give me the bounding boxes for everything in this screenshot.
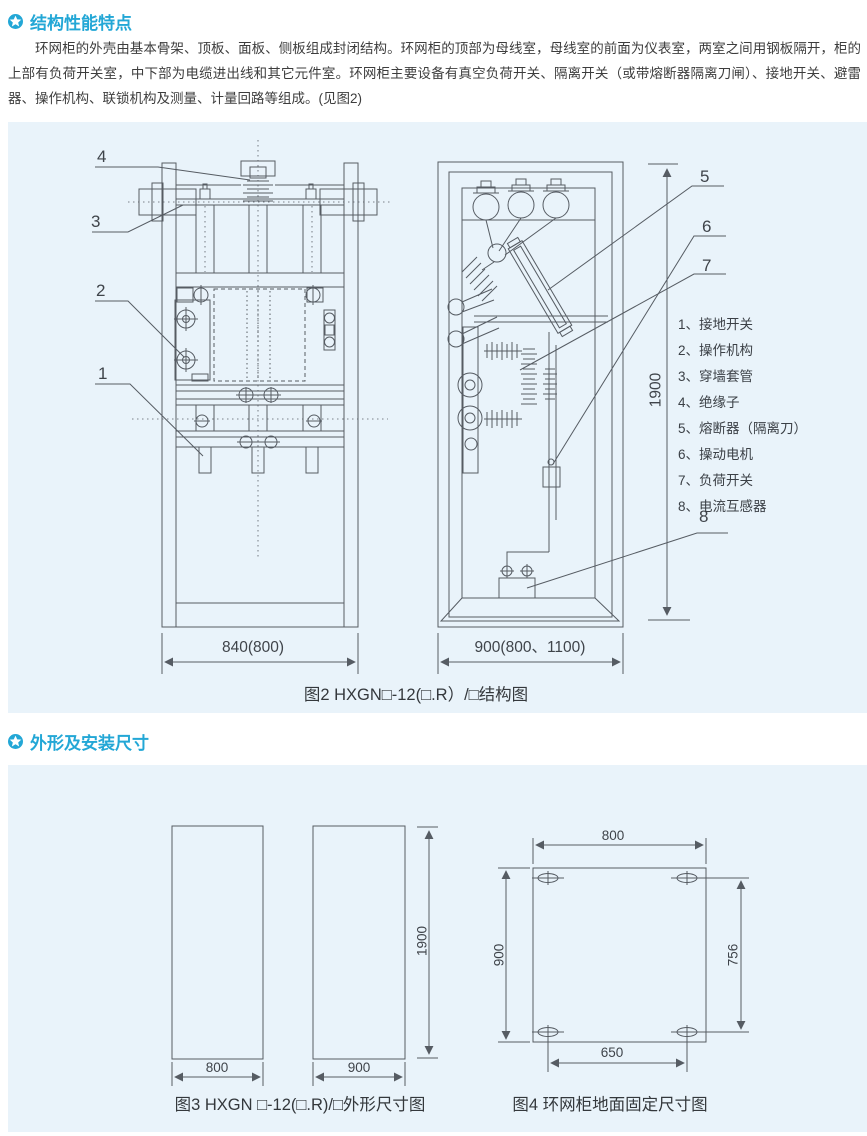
dim-label-front-width-fig3: 800 <box>206 1061 229 1075</box>
legend-item: 4、绝缘子 <box>678 390 807 416</box>
callout-2: 2 <box>96 282 105 299</box>
dim-label-right-fig4: 756 <box>726 944 740 967</box>
figure4-caption: 图4 环网柜地面固定尺寸图 <box>512 1097 707 1114</box>
dim-label-top-fig4: 800 <box>602 829 625 843</box>
dim-label-left-fig4: 900 <box>492 944 506 967</box>
legend-item: 2、操作机构 <box>678 338 807 364</box>
document-page: 结构性能特点 环网柜的外壳由基本骨架、顶板、面板、侧板组成封闭结构。环网柜的顶部… <box>0 0 867 1136</box>
section1-header: 结构性能特点 <box>8 9 132 34</box>
figure3-caption: 图3 HXGN □-12(□.R)/□外形尺寸图 <box>175 1097 426 1114</box>
dim-label-height-fig3: 1900 <box>415 926 429 956</box>
figure2-caption: 图2 HXGN□-12(□.R）/□结构图 <box>304 687 528 704</box>
section2-header: 外形及安装尺寸 <box>8 729 149 754</box>
legend-item: 6、操动电机 <box>678 442 807 468</box>
dim-label-bottom-fig4: 650 <box>601 1046 624 1060</box>
star-badge-icon <box>8 734 23 749</box>
legend-item: 3、穿墙套管 <box>678 364 807 390</box>
star-badge-icon <box>8 14 23 29</box>
callout-4: 4 <box>97 148 106 165</box>
section2-title: 外形及安装尺寸 <box>30 729 149 754</box>
section1-title: 结构性能特点 <box>30 9 132 34</box>
intro-paragraph: 环网柜的外壳由基本骨架、顶板、面板、侧板组成封闭结构。环网柜的顶部为母线室，母线… <box>8 36 861 111</box>
dim-label-height-fig2: 1900 <box>648 373 664 407</box>
legend-item: 1、接地开关 <box>678 312 807 338</box>
callout-1: 1 <box>98 365 107 382</box>
callout-5: 5 <box>700 168 709 185</box>
legend-item: 7、负荷开关 <box>678 468 807 494</box>
dim-label-side-width-fig3: 900 <box>348 1061 371 1075</box>
callout-7: 7 <box>702 257 711 274</box>
callout-3: 3 <box>91 213 100 230</box>
legend-item: 8、电流互感器 <box>678 494 807 520</box>
dim-label-front-width-fig2: 840(800) <box>222 640 284 656</box>
legend-item: 5、熔断器（隔离刀） <box>678 416 807 442</box>
figure2-legend: 1、接地开关 2、操作机构 3、穿墙套管 4、绝缘子 5、熔断器（隔离刀） 6、… <box>678 312 807 520</box>
dim-label-side-width-fig2: 900(800、1100) <box>475 640 586 656</box>
callout-6: 6 <box>702 218 711 235</box>
